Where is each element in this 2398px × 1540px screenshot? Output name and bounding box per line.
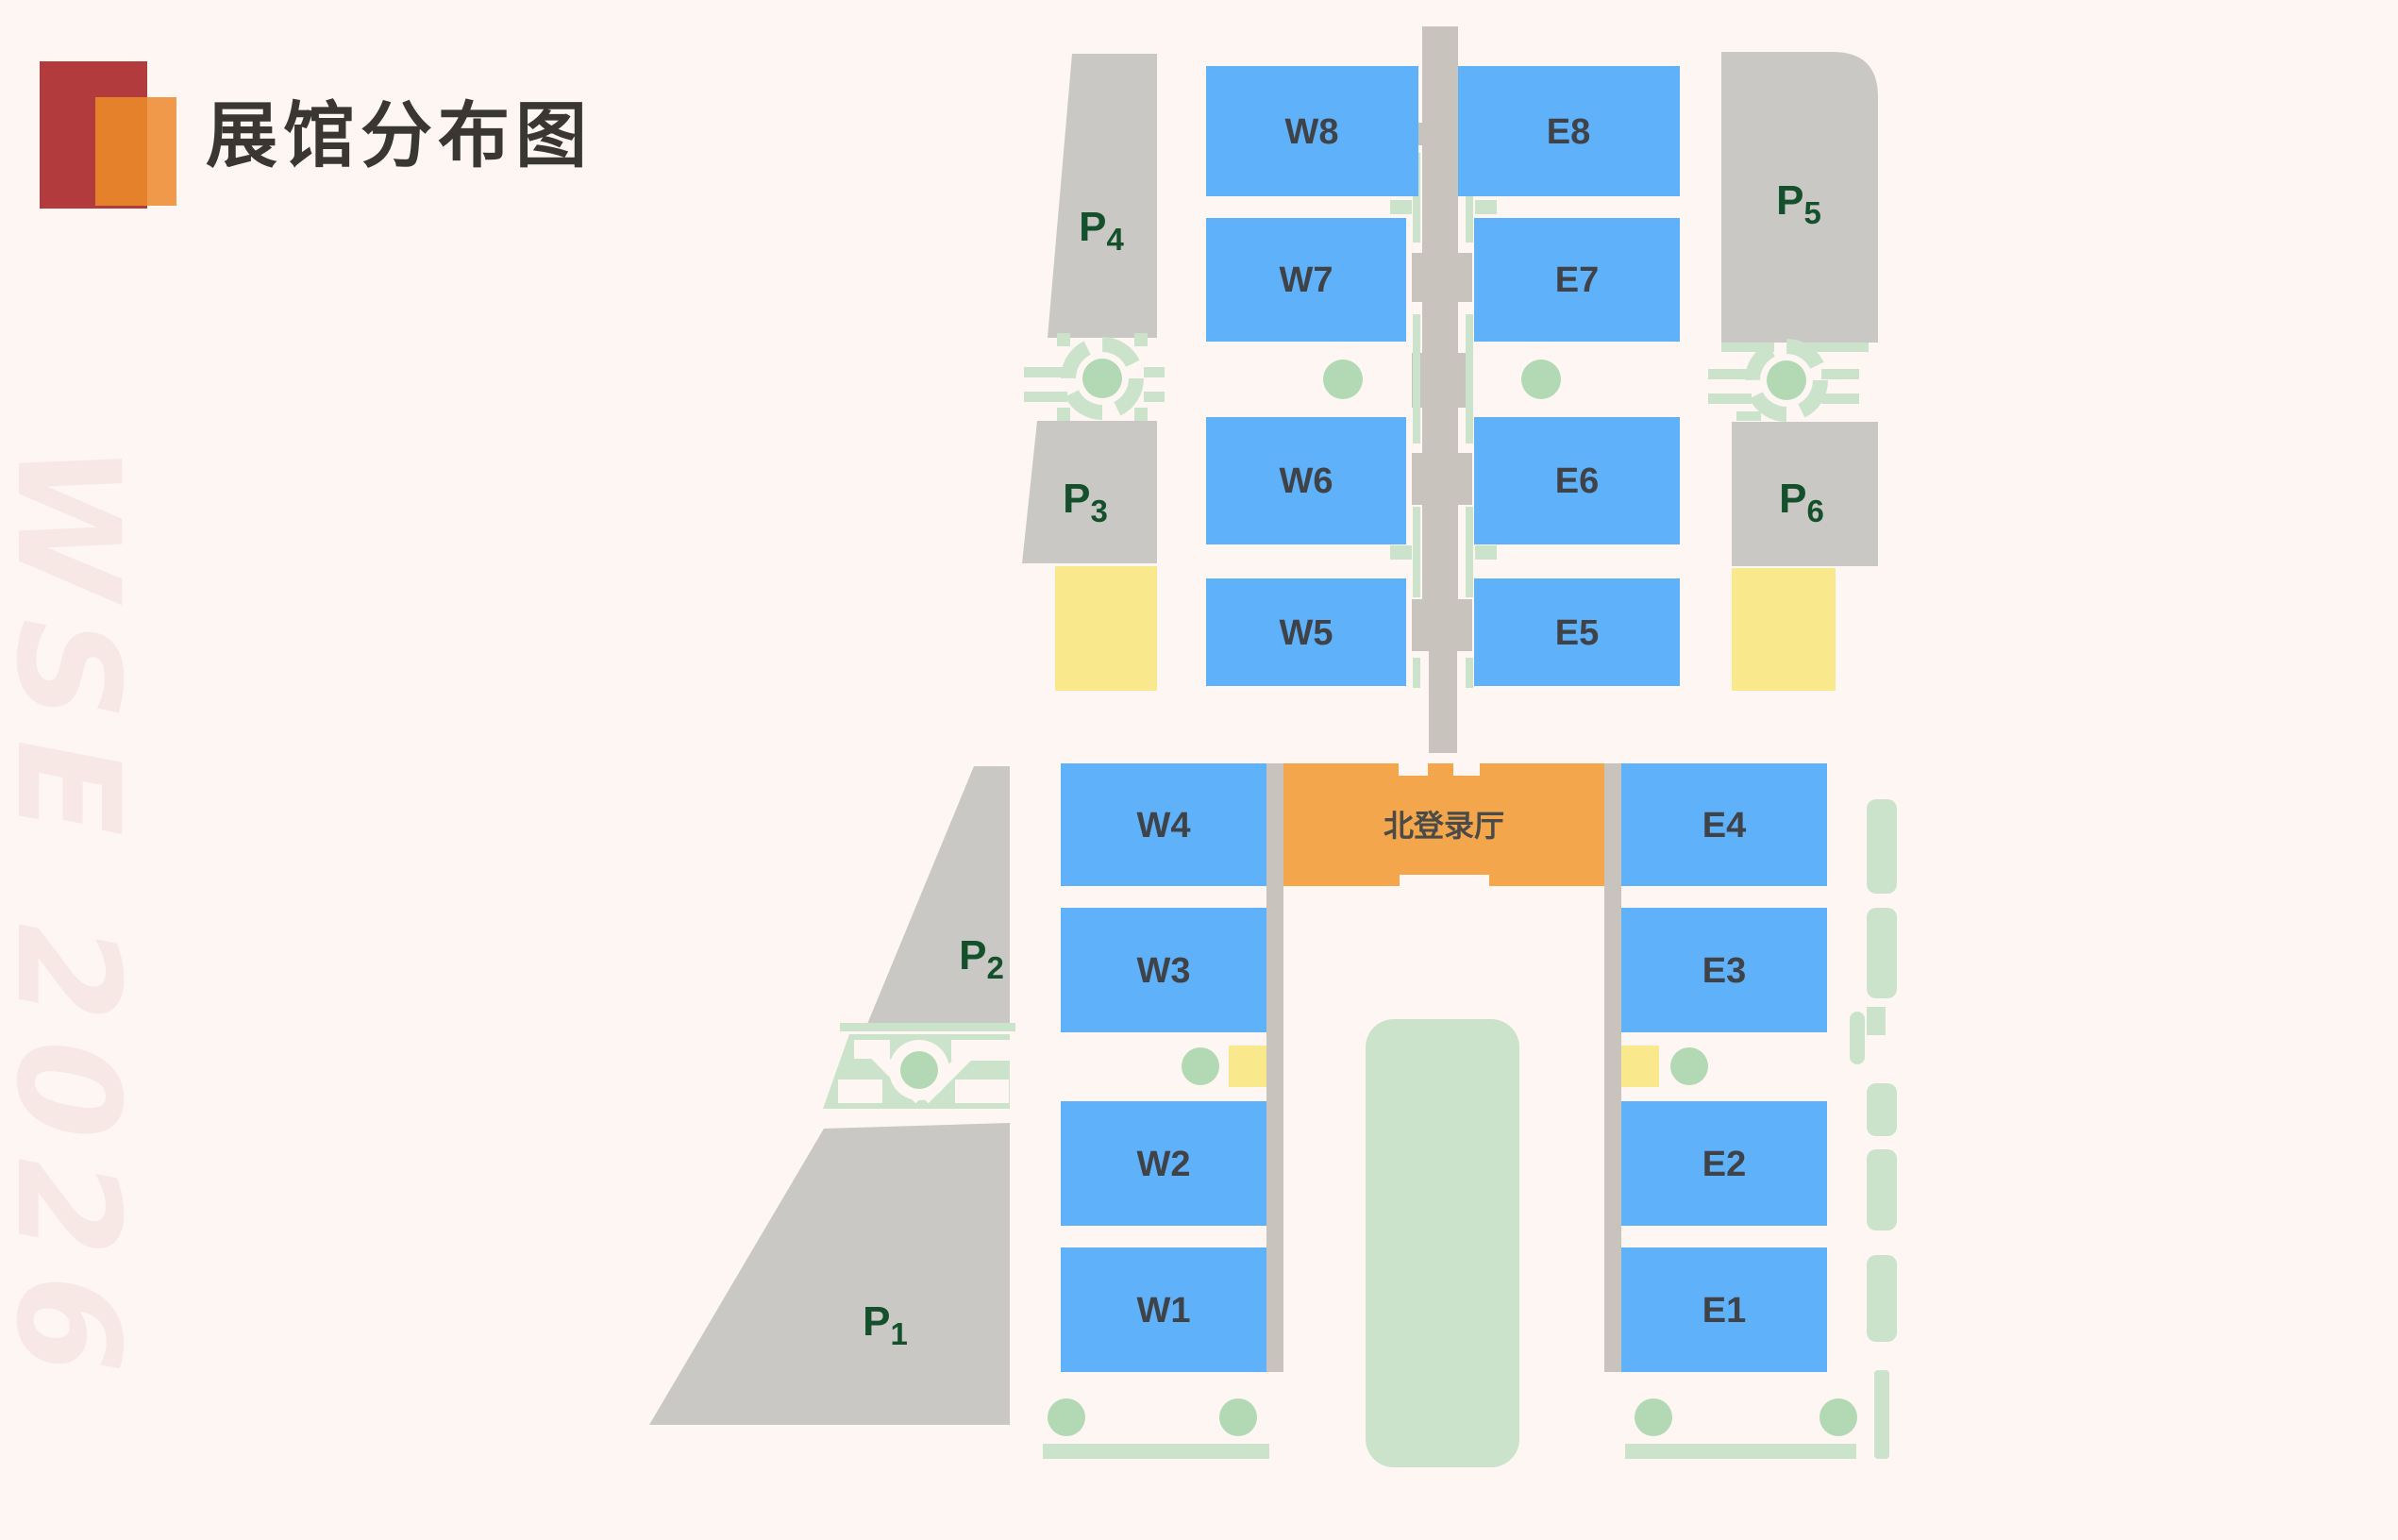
p2-sub: 2	[987, 950, 1004, 985]
tree-circle	[1182, 1047, 1219, 1085]
logo-orange-light-square	[147, 97, 176, 206]
tree-circle	[1521, 360, 1561, 399]
roundabout-southwest	[823, 1023, 1015, 1109]
hall-w1: W1	[1061, 1247, 1266, 1372]
walkway-strip-west	[1266, 763, 1283, 1372]
hall-e3-label: E3	[1702, 951, 1746, 991]
p5-prefix: P	[1776, 177, 1803, 224]
parking-p2-area	[865, 766, 1010, 1029]
hall-e7: E7	[1474, 218, 1680, 342]
p3-prefix: P	[1063, 476, 1090, 522]
hall-e1: E1	[1621, 1247, 1827, 1372]
hall-e6: E6	[1474, 417, 1680, 544]
p6-prefix: P	[1779, 476, 1806, 522]
p1-sub: 1	[891, 1316, 908, 1351]
roundabout-northeast	[1708, 343, 1869, 421]
hall-e5: E5	[1474, 578, 1680, 686]
hall-w2: W2	[1061, 1101, 1266, 1226]
logo-orange-square	[95, 97, 147, 206]
hall-w4: W4	[1061, 763, 1266, 886]
east-edge-green-strips	[1850, 799, 1897, 1342]
hall-w5: W5	[1206, 578, 1406, 686]
p6-sub: 6	[1807, 494, 1824, 528]
p1-prefix: P	[863, 1298, 890, 1345]
p4-prefix: P	[1079, 204, 1106, 250]
page-title: 展馆分布图	[206, 93, 593, 177]
logo	[40, 61, 176, 209]
p2-prefix: P	[959, 932, 986, 979]
walkway-strip-east	[1604, 763, 1621, 1372]
hall-e4: E4	[1621, 763, 1827, 886]
hall-w7-label: W7	[1280, 260, 1333, 300]
tree-circle	[1670, 1047, 1708, 1085]
hall-e1-label: E1	[1702, 1291, 1746, 1331]
tree-circle	[1219, 1398, 1257, 1436]
watermark-text: WSE 2026	[0, 444, 149, 1393]
north-entrance-hall: 北登录厅	[1283, 763, 1604, 886]
hall-w7: W7	[1206, 218, 1406, 342]
hall-e2: E2	[1621, 1101, 1827, 1226]
hall-w8-label: W8	[1285, 112, 1339, 152]
hall-w5-label: W5	[1280, 613, 1333, 653]
hall-w8: W8	[1206, 66, 1418, 196]
p4-sub: 4	[1107, 222, 1125, 257]
floor-plan-map: WSE 2026 展馆分布图	[0, 0, 2398, 1540]
tree-circle	[1819, 1398, 1857, 1436]
hall-e7-label: E7	[1555, 260, 1599, 300]
yellow-block-small-west	[1229, 1046, 1266, 1087]
roundabout-northwest	[1024, 333, 1165, 421]
north-entrance-hall-label: 北登录厅	[1383, 808, 1504, 844]
yellow-block-west	[1055, 566, 1157, 691]
p5-sub: 5	[1804, 195, 1821, 230]
yellow-block-east	[1732, 568, 1836, 691]
parking-p1-area	[649, 1123, 1010, 1425]
hall-e5-label: E5	[1555, 613, 1599, 653]
hall-w4-label: W4	[1137, 806, 1191, 845]
hall-e6-label: E6	[1555, 461, 1599, 501]
tree-circle	[1048, 1398, 1085, 1436]
corridor-south-tail	[1429, 651, 1457, 753]
parking-p4-area	[1048, 54, 1157, 338]
hall-w1-label: W1	[1137, 1291, 1191, 1331]
hall-w6-label: W6	[1280, 461, 1333, 501]
p3-sub: 3	[1091, 494, 1108, 528]
tree-circle	[1635, 1398, 1672, 1436]
exhibition-map-page: WSE 2026 展馆分布图	[0, 0, 2398, 1540]
hall-e8-label: E8	[1547, 112, 1590, 152]
yellow-block-small-east	[1621, 1046, 1659, 1087]
hall-w6: W6	[1206, 417, 1406, 544]
hall-e4-label: E4	[1702, 806, 1746, 845]
hall-w3: W3	[1061, 908, 1266, 1032]
hall-e8: E8	[1458, 66, 1680, 196]
hall-w2-label: W2	[1137, 1145, 1191, 1184]
hall-e3: E3	[1621, 908, 1827, 1032]
tree-circle	[1323, 360, 1363, 399]
courtyard-green	[1366, 1019, 1519, 1467]
hall-e2-label: E2	[1702, 1145, 1746, 1184]
hall-w3-label: W3	[1137, 951, 1191, 991]
